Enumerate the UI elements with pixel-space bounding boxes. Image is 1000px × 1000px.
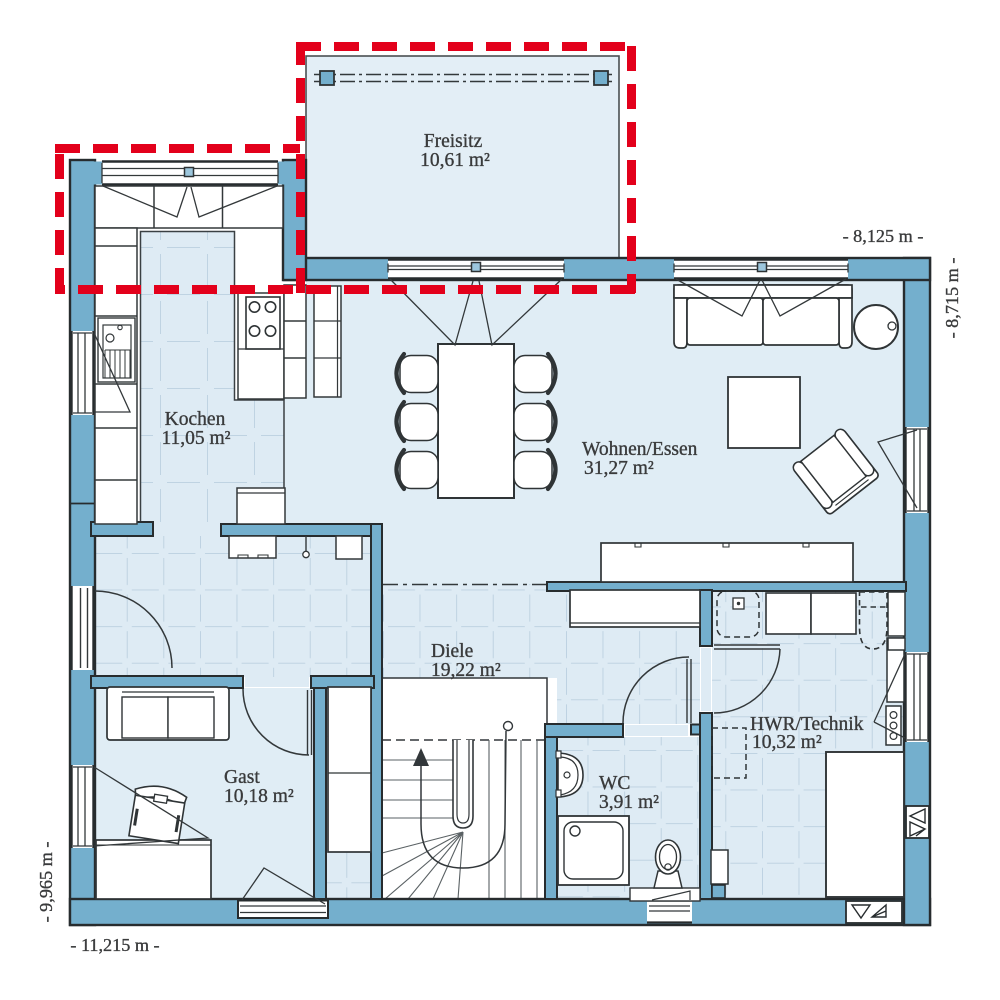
svg-text:3,91 m²: 3,91 m²	[599, 792, 659, 813]
svg-text:WC: WC	[599, 773, 630, 794]
svg-text:- 8,125 m -: - 8,125 m -	[843, 226, 924, 246]
svg-text:- 11,215 m -: - 11,215 m -	[70, 935, 159, 955]
svg-text:- 8,715 m -: - 8,715 m -	[942, 258, 962, 339]
svg-text:Kochen: Kochen	[165, 409, 226, 430]
svg-text:Freisitz: Freisitz	[424, 131, 483, 152]
svg-text:31,27 m²: 31,27 m²	[584, 458, 654, 479]
svg-text:19,22 m²: 19,22 m²	[431, 660, 501, 681]
svg-text:10,18 m²: 10,18 m²	[224, 786, 294, 807]
svg-text:10,32 m²: 10,32 m²	[752, 732, 822, 753]
svg-text:Diele: Diele	[431, 641, 473, 662]
svg-text:11,05 m²: 11,05 m²	[161, 428, 230, 449]
svg-text:10,61 m²: 10,61 m²	[420, 150, 490, 171]
svg-text:Wohnen/Essen: Wohnen/Essen	[582, 439, 698, 460]
svg-text:- 9,965 m -: - 9,965 m -	[36, 842, 56, 923]
svg-text:Gast: Gast	[224, 767, 260, 788]
